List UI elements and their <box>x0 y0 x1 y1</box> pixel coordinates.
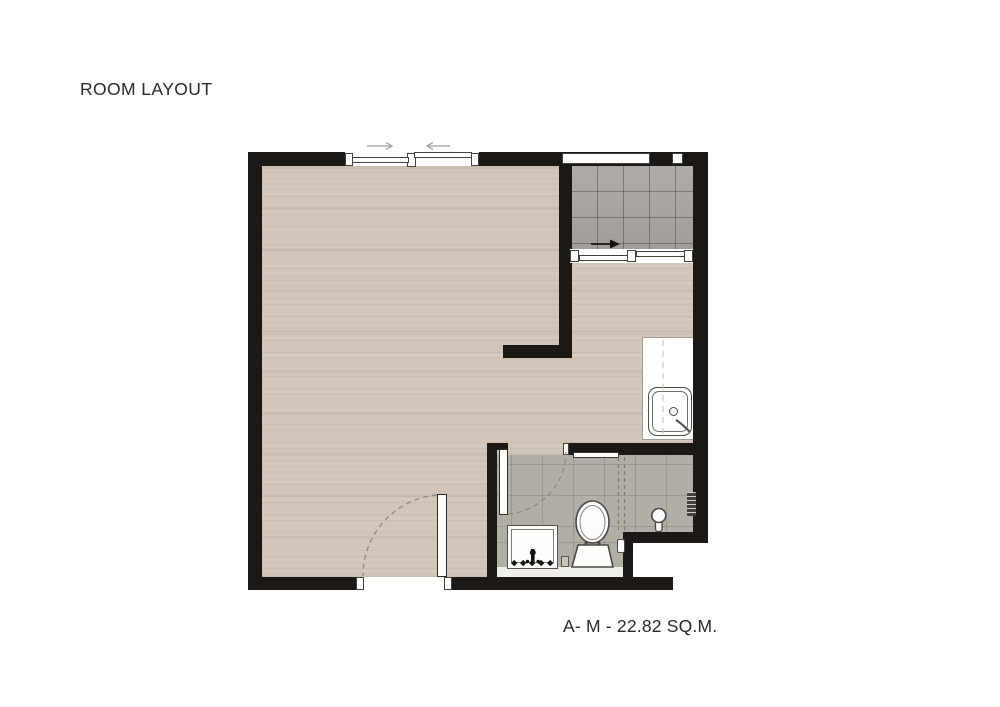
floor-plan <box>0 0 1000 707</box>
towel-bar-icon <box>573 452 619 458</box>
door-stop-icon <box>617 539 625 553</box>
wall-bottom <box>252 577 673 590</box>
entrance-door-opening <box>363 577 445 590</box>
door-jamb <box>563 443 569 455</box>
window-icon <box>672 153 683 164</box>
window-jamb <box>471 153 479 166</box>
wall-right <box>693 152 708 543</box>
sliding-door-panel <box>636 251 685 257</box>
sliding-window-panel <box>352 157 409 163</box>
sliding-door-panel <box>579 255 628 261</box>
balcony-tile-floor <box>572 166 693 250</box>
vanity-basin <box>511 529 554 563</box>
door-jamb <box>444 577 452 590</box>
bathroom-floor-upper <box>497 455 693 533</box>
sliding-door-handle <box>627 250 636 262</box>
wall-bathroom-left <box>487 443 497 583</box>
exterior-notch <box>633 543 693 577</box>
sink-drain-icon <box>669 407 678 416</box>
slide-direction-arrow-icon <box>367 143 450 150</box>
sliding-door-handle <box>684 250 693 262</box>
bathroom-door-leaf <box>499 449 508 515</box>
entrance-door-leaf <box>437 494 447 577</box>
window-icon <box>562 153 650 164</box>
sliding-door-handle <box>570 250 579 262</box>
wall-interior-horizontal <box>503 345 572 358</box>
wall-left <box>248 152 262 590</box>
door-jamb <box>356 577 364 590</box>
shower-mixer-icon <box>687 492 696 516</box>
area-label: A- M - 22.82 SQ.M. <box>563 616 717 637</box>
sliding-window-panel <box>414 152 472 158</box>
wall-step-horizontal <box>623 532 703 543</box>
floor-drain-icon <box>561 556 569 567</box>
